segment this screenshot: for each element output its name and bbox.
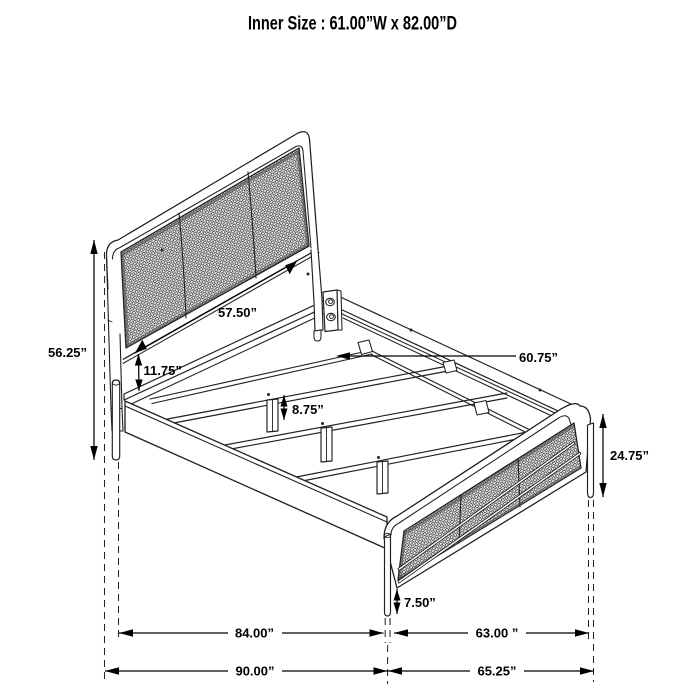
- svg-text:63.00 ”: 63.00 ”: [476, 626, 519, 641]
- svg-text:60.75”: 60.75”: [519, 350, 558, 365]
- svg-text:11.75”: 11.75”: [144, 363, 182, 378]
- svg-text:24.75”: 24.75”: [610, 448, 649, 463]
- svg-text:65.25”: 65.25”: [477, 664, 516, 679]
- svg-text:56.25”: 56.25”: [48, 345, 87, 360]
- svg-text:84.00”: 84.00”: [235, 626, 274, 641]
- svg-text:Inner Size : 61.00”W x 82.00”D: Inner Size : 61.00”W x 82.00”D: [248, 14, 457, 35]
- svg-text:57.50”: 57.50”: [218, 305, 257, 320]
- svg-text:90.00”: 90.00”: [235, 664, 274, 679]
- svg-text:8.75”: 8.75”: [292, 402, 324, 417]
- svg-text:7.50”: 7.50”: [404, 595, 436, 610]
